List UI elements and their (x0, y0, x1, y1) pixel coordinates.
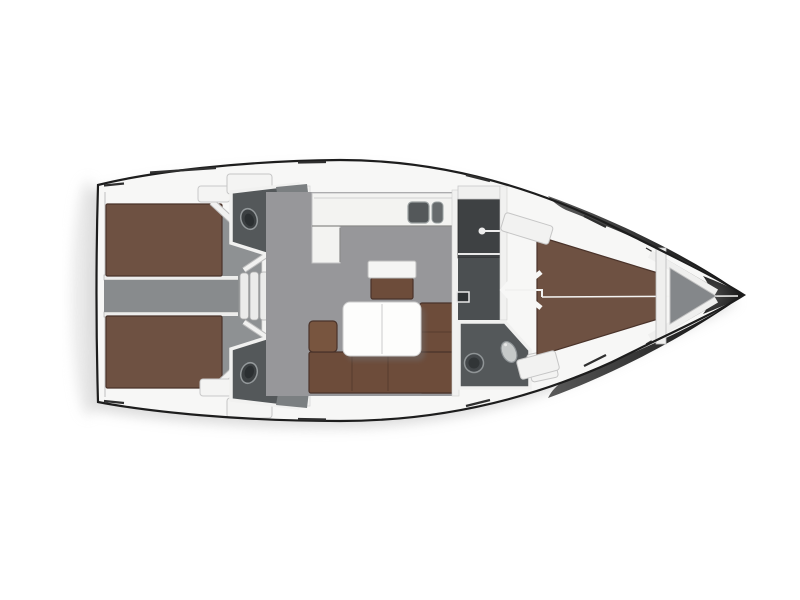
galley-sink-icon (432, 202, 443, 223)
boat-floorplan-image (0, 0, 800, 600)
boat-floorplan-svg (0, 0, 800, 600)
aft-port-berth (106, 204, 222, 276)
salon-table (343, 302, 425, 361)
hallway-floor (458, 258, 500, 320)
step-tread (240, 273, 249, 319)
nav-bench (368, 261, 416, 299)
aft-corridor (104, 275, 244, 317)
deck-locker (200, 379, 232, 396)
aft-starboard-berth (106, 316, 222, 388)
step-tread (250, 272, 259, 320)
sofa-armrest (309, 321, 337, 352)
galley-sink-icon (408, 202, 429, 223)
toilet-icon (465, 354, 484, 373)
hatch-icon (457, 292, 469, 302)
deck-locker (198, 186, 230, 202)
